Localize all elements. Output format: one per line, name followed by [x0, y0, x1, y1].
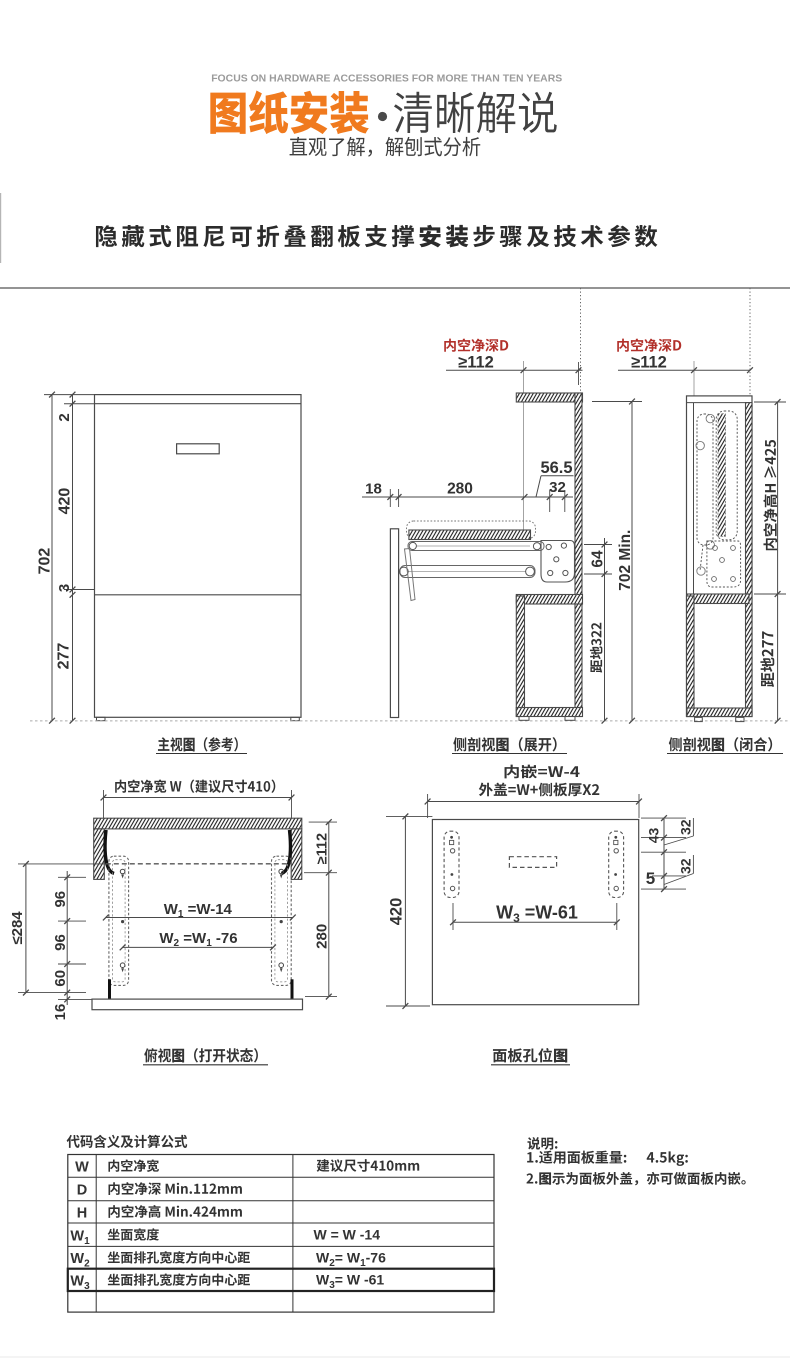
- svg-text:H: H: [77, 1206, 87, 1222]
- svg-text:18: 18: [365, 481, 382, 498]
- svg-text:≤284: ≤284: [9, 911, 26, 945]
- svg-text:96: 96: [52, 891, 69, 908]
- svg-text:FOCUS ON HARDWARE ACCESSORIES: FOCUS ON HARDWARE ACCESSORIES FOR MORE T…: [211, 73, 562, 85]
- svg-text:702 Min.: 702 Min.: [617, 530, 634, 591]
- svg-text:W2 =W1 -76: W2 =W1 -76: [159, 930, 237, 949]
- svg-text:277: 277: [55, 643, 72, 670]
- svg-text:280: 280: [313, 924, 330, 949]
- svg-text:≥112: ≥112: [631, 354, 667, 372]
- svg-text:2: 2: [56, 413, 73, 421]
- svg-text:280: 280: [447, 481, 473, 498]
- svg-text:3: 3: [56, 584, 73, 592]
- svg-text:W: W: [75, 1160, 89, 1176]
- svg-text:32: 32: [678, 858, 694, 874]
- svg-text:5: 5: [646, 869, 655, 888]
- svg-text:32: 32: [678, 819, 694, 835]
- svg-text:W = W -14: W = W -14: [314, 1226, 381, 1242]
- svg-text:60: 60: [52, 970, 69, 987]
- svg-text:D: D: [77, 1183, 87, 1199]
- svg-text:56.5: 56.5: [540, 459, 572, 477]
- svg-text:43: 43: [646, 828, 662, 844]
- svg-text:96: 96: [52, 934, 69, 951]
- svg-text:≥112: ≥112: [458, 354, 494, 372]
- svg-text:64: 64: [590, 550, 607, 568]
- svg-text:32: 32: [549, 479, 566, 496]
- svg-text:≥112: ≥112: [315, 833, 331, 864]
- svg-text:16: 16: [52, 1004, 69, 1021]
- svg-text:420: 420: [387, 898, 405, 926]
- svg-text:702: 702: [36, 548, 53, 575]
- svg-text:420: 420: [57, 488, 74, 515]
- svg-text:W3 =W-61: W3 =W-61: [496, 903, 578, 926]
